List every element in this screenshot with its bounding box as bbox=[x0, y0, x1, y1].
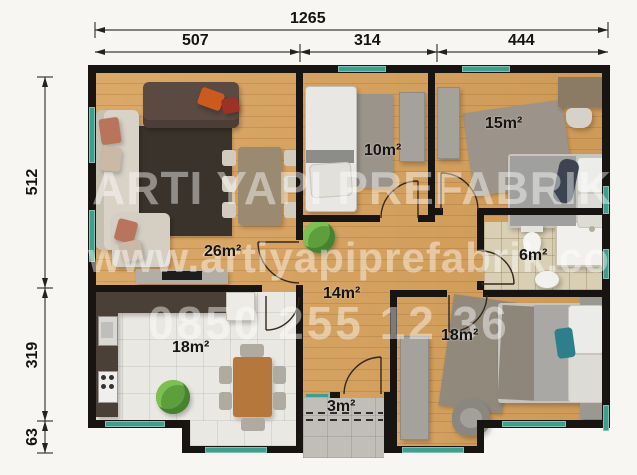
room-label-kitchen: 18m² bbox=[172, 339, 209, 357]
dimension-arrows bbox=[42, 27, 608, 453]
dimension-lines-layer bbox=[0, 0, 637, 475]
floor-plan-sheet: ARTI YAPI PREFABRIK www.artiyapiprefabri… bbox=[0, 0, 637, 475]
room-label-bathroom: 6m² bbox=[519, 247, 547, 265]
dim-segment-507: 507 bbox=[182, 32, 209, 50]
room-label-entry: 3m² bbox=[327, 398, 355, 416]
dim-segment-314: 314 bbox=[354, 32, 381, 50]
room-label-bedroom-15: 15m² bbox=[485, 115, 522, 133]
dim-segment-63: 63 bbox=[24, 415, 42, 459]
room-label-hall: 14m² bbox=[323, 285, 360, 303]
room-label-living: 26m² bbox=[204, 243, 241, 261]
dim-segment-444: 444 bbox=[508, 32, 535, 50]
dim-segment-512: 512 bbox=[24, 160, 42, 204]
room-label-small-bedroom: 10m² bbox=[364, 142, 401, 160]
room-label-bedroom-18: 18m² bbox=[441, 327, 478, 345]
dim-segment-319: 319 bbox=[24, 333, 42, 377]
dimension-lines bbox=[37, 22, 608, 453]
dim-total-width: 1265 bbox=[290, 10, 326, 28]
